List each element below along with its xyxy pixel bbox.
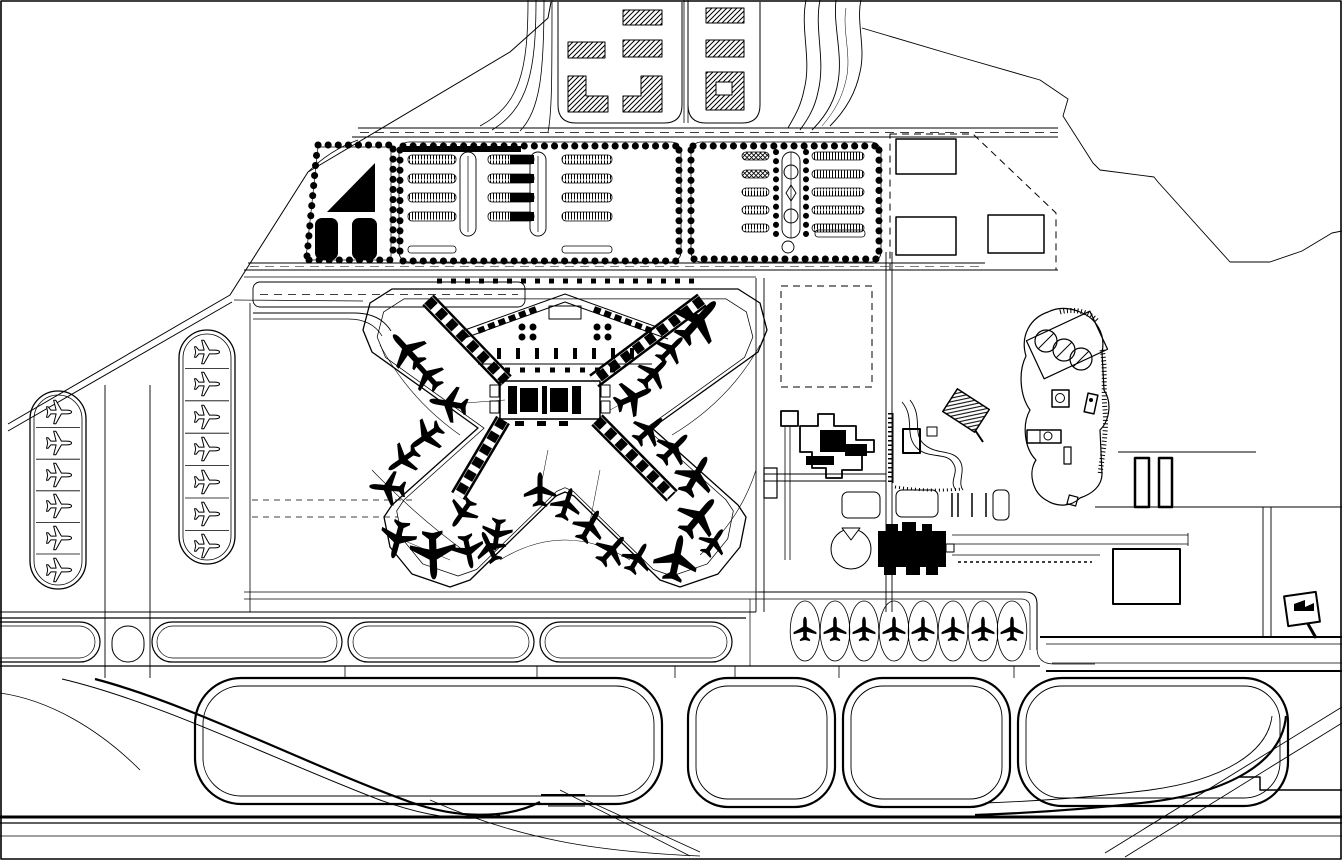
terminal-element bbox=[515, 421, 524, 426]
parking-element bbox=[812, 206, 864, 214]
facility-element bbox=[886, 524, 898, 531]
facility-element bbox=[845, 444, 867, 456]
facility-element bbox=[922, 524, 932, 531]
parking-element bbox=[562, 212, 612, 221]
parking-element bbox=[742, 188, 769, 196]
parking-element bbox=[315, 218, 338, 260]
parking-element bbox=[742, 152, 769, 160]
terminal-element bbox=[520, 388, 538, 412]
parking-element bbox=[742, 170, 769, 178]
facility-element bbox=[926, 567, 938, 575]
terminal-element bbox=[605, 324, 612, 331]
parking-element bbox=[562, 193, 612, 202]
parking-element bbox=[742, 206, 769, 214]
building-hatched bbox=[706, 40, 744, 57]
parking-element bbox=[812, 152, 864, 160]
parking-element bbox=[408, 155, 456, 164]
facility-element bbox=[820, 430, 846, 452]
terminal-element bbox=[594, 334, 601, 341]
terminal-element bbox=[605, 334, 612, 341]
building-hatched bbox=[716, 82, 732, 95]
paper-background bbox=[0, 0, 1342, 860]
cad-sheet bbox=[0, 0, 1342, 860]
building-hatched bbox=[623, 40, 662, 57]
terminal-element bbox=[508, 386, 517, 414]
parking-element bbox=[403, 146, 521, 152]
parking-element bbox=[812, 224, 864, 232]
terminal-element bbox=[572, 386, 581, 414]
terminal-element bbox=[535, 348, 539, 359]
parking-element bbox=[408, 193, 456, 202]
parking-element bbox=[812, 170, 864, 178]
terminal-element bbox=[530, 334, 537, 341]
parking-element bbox=[812, 188, 864, 196]
parking-element bbox=[562, 155, 612, 164]
terminal-element bbox=[554, 348, 558, 359]
terminal-element bbox=[611, 348, 615, 359]
facility-element bbox=[906, 567, 920, 575]
terminal-element bbox=[530, 324, 537, 331]
terminal-element bbox=[592, 348, 596, 359]
facility-element bbox=[884, 567, 896, 575]
building-hatched bbox=[623, 10, 662, 25]
airport-site-plan bbox=[0, 0, 1342, 860]
parking-element bbox=[742, 224, 769, 232]
facility-element bbox=[878, 531, 946, 567]
building-hatched bbox=[568, 42, 605, 58]
terminal-element bbox=[573, 348, 577, 359]
terminal-element bbox=[542, 386, 547, 414]
parking-element bbox=[408, 212, 456, 221]
terminal-element bbox=[559, 421, 568, 426]
terminal-element bbox=[537, 421, 546, 426]
terminal-element bbox=[516, 348, 520, 359]
building-hatched bbox=[706, 8, 744, 23]
terminal-element bbox=[594, 324, 601, 331]
parking-element bbox=[408, 174, 456, 183]
terminal-element bbox=[519, 324, 526, 331]
parking-element bbox=[562, 174, 612, 183]
terminal-element bbox=[497, 348, 501, 359]
facility-element bbox=[806, 456, 834, 465]
terminal-element bbox=[630, 348, 634, 359]
facility-element bbox=[1089, 398, 1093, 402]
terminal-element bbox=[550, 388, 568, 412]
facility-element bbox=[902, 522, 916, 531]
terminal-element bbox=[519, 334, 526, 341]
parking-element bbox=[352, 218, 377, 260]
